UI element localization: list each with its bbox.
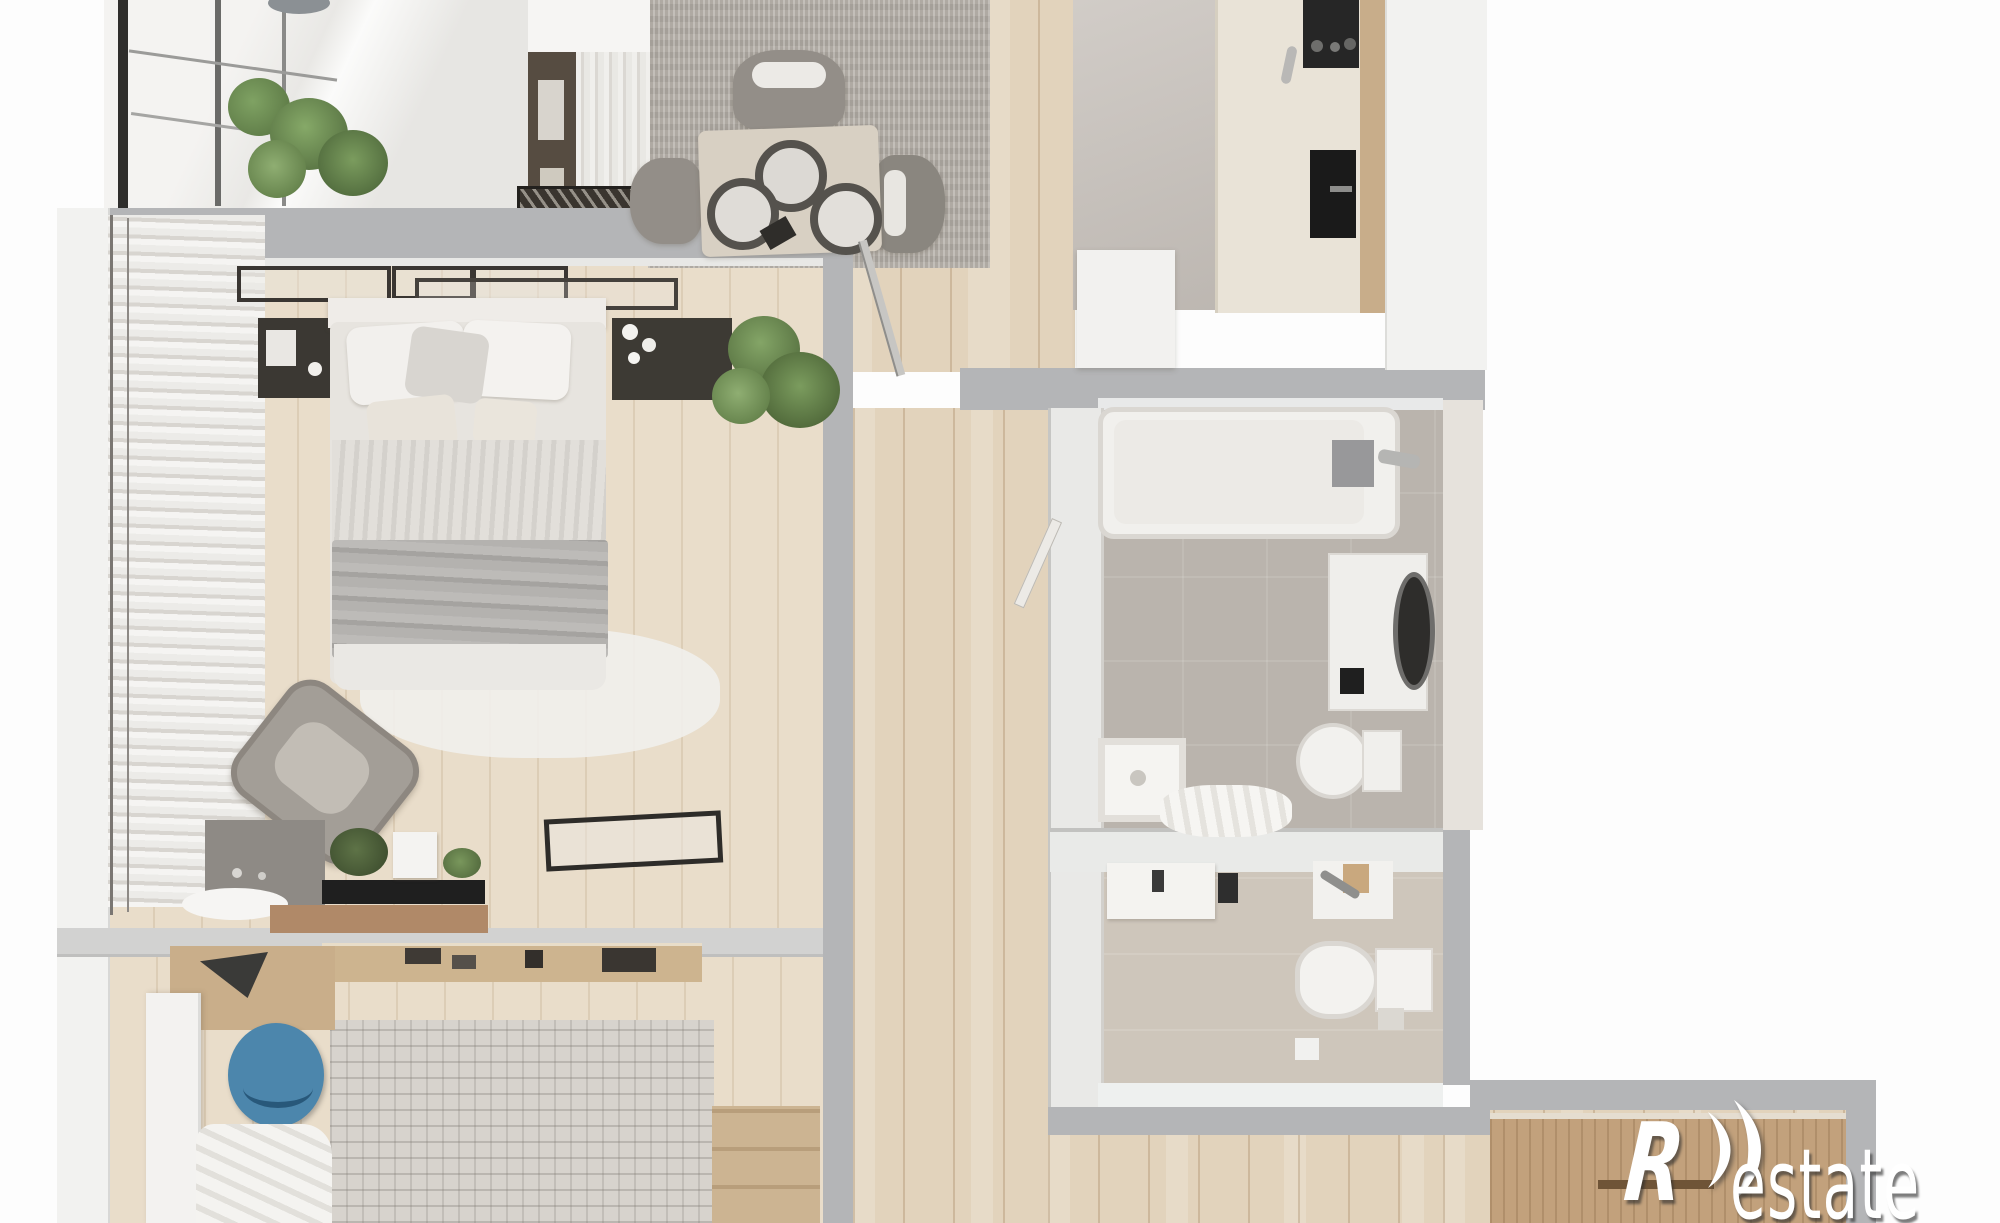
hall-top-floor bbox=[988, 0, 1075, 372]
bidet-bowl bbox=[1295, 941, 1379, 1019]
bedroom-curtains bbox=[108, 215, 265, 907]
window-sill bbox=[528, 0, 650, 58]
dining-plate bbox=[810, 183, 882, 255]
nightstand-decor bbox=[266, 330, 296, 366]
wc-sink-faucet bbox=[1152, 870, 1164, 892]
washing-machine-door bbox=[1393, 572, 1435, 690]
washing-machine-control bbox=[1340, 668, 1364, 694]
bedroom2-wardrobe-door bbox=[146, 993, 201, 1223]
blue-chair-seam bbox=[243, 1068, 313, 1108]
shelf-item bbox=[525, 950, 543, 968]
entry-floor bbox=[1048, 1133, 1493, 1223]
curtain-rod bbox=[127, 218, 129, 912]
dining-chair bbox=[630, 158, 702, 244]
headboard-glass-panel bbox=[237, 266, 391, 302]
bedroom-plant bbox=[712, 368, 770, 424]
shelf-item bbox=[452, 955, 476, 969]
bath-towels bbox=[1160, 785, 1292, 837]
oven bbox=[1310, 150, 1356, 238]
cooktop-burner bbox=[1330, 42, 1340, 52]
cooktop bbox=[1303, 0, 1359, 68]
bathtub-inner bbox=[1114, 420, 1364, 524]
vanity-white-box bbox=[393, 832, 437, 878]
toilet-bowl bbox=[1296, 723, 1370, 799]
wall-wc-bottom bbox=[1048, 1107, 1490, 1135]
vanity-black-tray bbox=[322, 880, 485, 904]
shelf-item bbox=[602, 948, 656, 972]
window-pane bbox=[538, 80, 564, 140]
wall-kitchen-right-outer bbox=[1385, 0, 1487, 370]
wall-bath-right-outer bbox=[1443, 400, 1483, 830]
vanity-plant bbox=[443, 848, 481, 878]
vanity-glass-tray bbox=[544, 810, 723, 871]
bedroom2-blanket bbox=[196, 1124, 332, 1223]
balcony-plant-leaf bbox=[248, 140, 306, 198]
bed-blanket bbox=[332, 540, 608, 658]
bedroom-plant bbox=[760, 352, 840, 428]
cooktop-burner bbox=[1311, 40, 1323, 52]
nightstand-decor bbox=[308, 362, 322, 376]
wall-left-outer bbox=[57, 208, 110, 1223]
kitchen-island bbox=[1077, 250, 1175, 368]
curtain-rod bbox=[110, 215, 113, 915]
bedroom2-bench bbox=[712, 1106, 820, 1223]
flower-white bbox=[622, 324, 638, 340]
balcony-mullion bbox=[215, 0, 221, 206]
corridor-floor bbox=[853, 408, 1048, 1223]
floor-plan-render: R estate bbox=[0, 0, 2000, 1223]
bidet-tank bbox=[1375, 948, 1433, 1012]
vanity-wood-board bbox=[270, 905, 488, 933]
balcony-plant-leaf bbox=[318, 130, 388, 196]
shower-drain bbox=[1130, 770, 1146, 786]
shelf-item bbox=[405, 948, 441, 964]
bed-pillow-gray bbox=[404, 325, 491, 405]
dining-chair-cushion bbox=[884, 170, 906, 236]
wall-wc-bottom-inner bbox=[1098, 1083, 1443, 1109]
wc-small-box bbox=[1295, 1038, 1319, 1060]
cooktop-burner bbox=[1344, 38, 1356, 50]
shower-mixer bbox=[1332, 440, 1374, 487]
kitchen-wood-panel bbox=[1360, 0, 1385, 313]
vanity-knob bbox=[258, 872, 266, 880]
flower-white bbox=[628, 352, 640, 364]
wall-wc-right bbox=[1443, 830, 1470, 1085]
wc-small-item bbox=[1378, 1008, 1404, 1030]
vanity-knob bbox=[232, 868, 242, 878]
flower-white bbox=[642, 338, 656, 352]
watermark: R estate bbox=[1630, 1096, 2000, 1223]
bed-sheet bbox=[334, 644, 606, 690]
wc-dark-item bbox=[1218, 873, 1238, 903]
bed-duvet bbox=[332, 440, 606, 550]
vanity-plant bbox=[330, 828, 388, 876]
wall-bath-left bbox=[1048, 408, 1104, 1133]
balcony-window-frame bbox=[118, 0, 128, 208]
toilet-tank bbox=[1362, 730, 1402, 792]
dining-chair-cushion bbox=[752, 62, 826, 88]
bedroom2-rug bbox=[330, 1020, 714, 1223]
watermark-text: estate bbox=[1730, 1136, 1920, 1223]
watermark-letter-r: R bbox=[1621, 1110, 1689, 1218]
oven-handle bbox=[1330, 186, 1352, 192]
